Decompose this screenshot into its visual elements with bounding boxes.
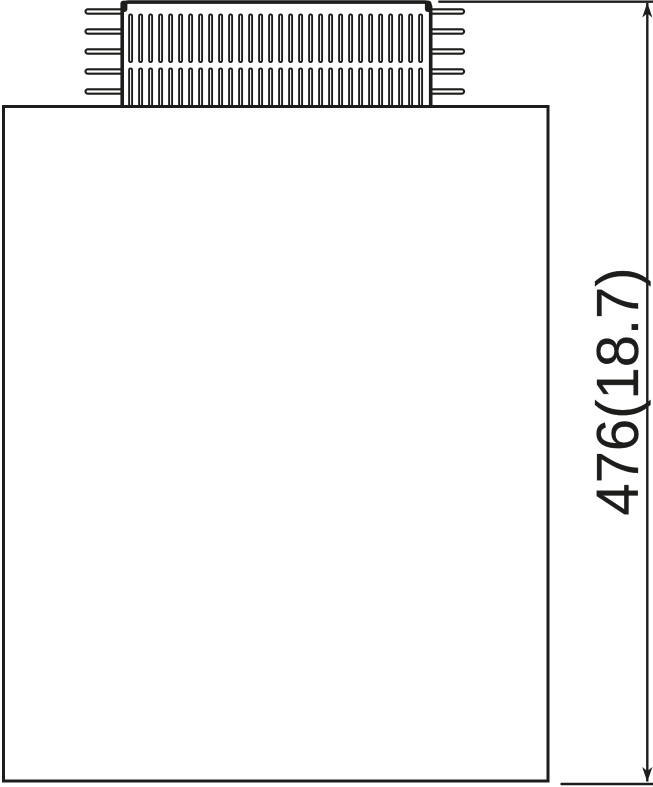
svg-text:476(18.7): 476(18.7)	[585, 267, 651, 515]
